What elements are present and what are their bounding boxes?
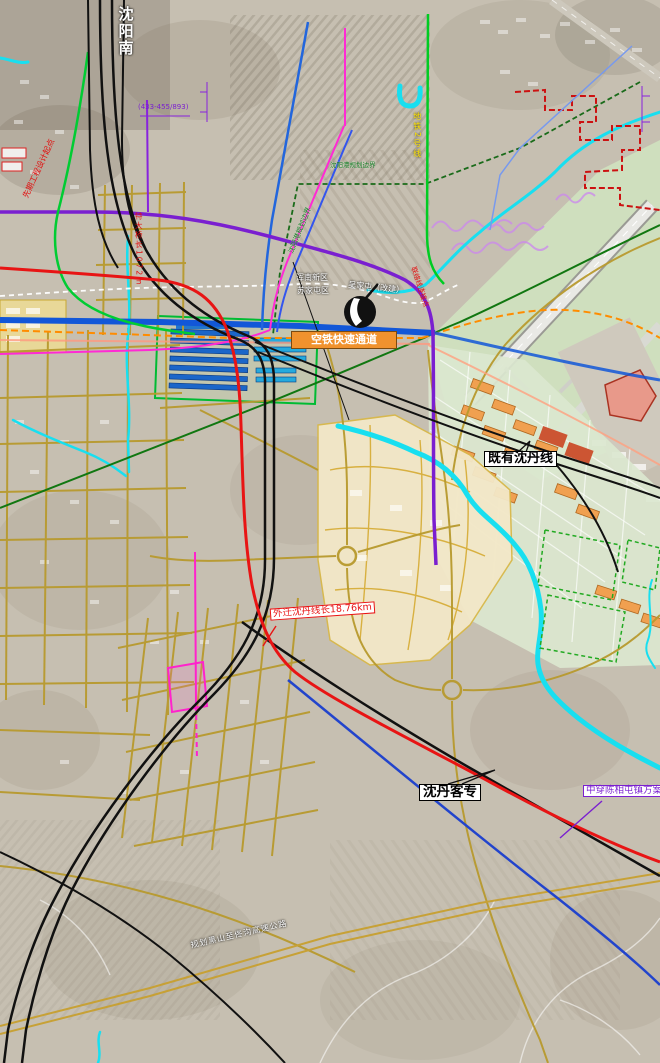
label-metro-line: 地铁2号线 <box>412 112 421 159</box>
station-yard <box>155 316 318 404</box>
map-canvas <box>0 0 660 1063</box>
label-shenyang-south-station: 沈阳南 <box>117 6 134 57</box>
label-hunnan-district: 浑南新区 <box>296 274 328 283</box>
label-air-rail-corridor: 空铁快速通道 <box>291 331 397 349</box>
label-chenxiangtun-plan: 中穿陈相屯镇方案 <box>583 785 660 797</box>
label-existing-shendan-line: 既有沈丹线 <box>484 451 557 467</box>
label-sujiatun-district: 苏家屯区 <box>297 287 329 296</box>
label-chainage: (433-455/893) <box>138 104 188 112</box>
label-port-boundary-2: 沈阳港规划边界 <box>330 162 376 169</box>
planning-map: 沈阳南 (433-455/893) 先期工程设计起点 特大桥长1072m 浑南新… <box>0 0 660 1063</box>
rail-housing-block <box>0 300 66 352</box>
label-bridge-length: 特大桥长1072m <box>134 212 142 286</box>
label-shendan-passenger-line: 沈丹客专 <box>419 784 481 801</box>
